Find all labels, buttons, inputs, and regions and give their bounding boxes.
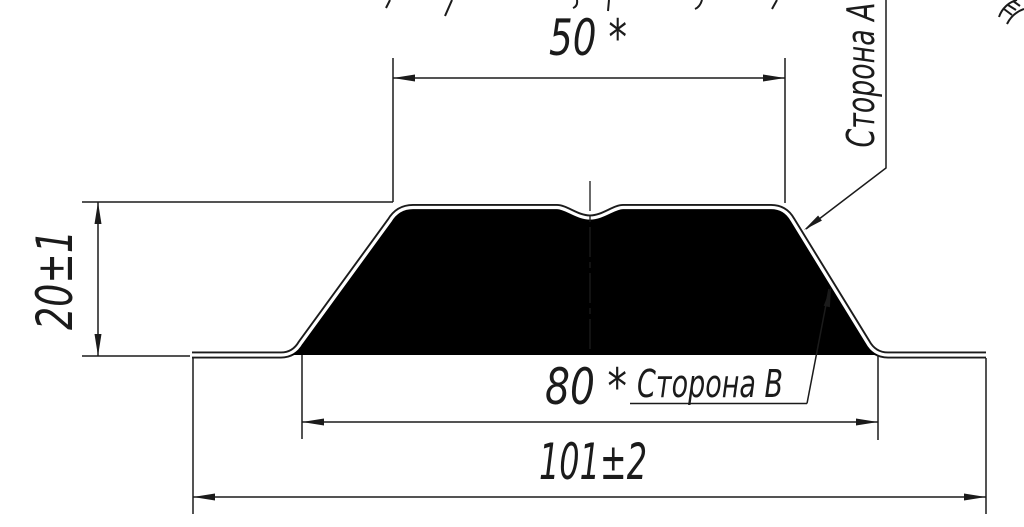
dimension-label-overall-width: 101±2 <box>539 433 647 491</box>
arrowhead <box>804 216 822 231</box>
dimension-base-width: 80 * <box>302 355 878 440</box>
drawing-canvas: 50 * 20±1 80 * 101±2 <box>0 0 1024 527</box>
arrowhead <box>95 334 102 356</box>
drawing-sheet: 50 * 20±1 80 * 101±2 <box>0 0 1024 527</box>
arrowhead <box>302 419 324 426</box>
detail-view-fragment <box>999 0 1024 24</box>
arrowhead <box>964 494 986 501</box>
arrowhead <box>763 75 785 82</box>
arrowhead <box>95 202 102 224</box>
dimension-label-height: 20±1 <box>26 230 84 330</box>
side-b-label: Сторона В <box>637 362 783 406</box>
side-a-label: Сторона А <box>839 3 883 148</box>
dimension-label-base-width: 80 * <box>545 358 627 416</box>
arrowhead <box>856 419 878 426</box>
arrowhead <box>193 494 215 501</box>
arrowhead <box>393 75 415 82</box>
profile-section <box>192 208 986 356</box>
callout-side-a: Сторона А <box>804 0 886 230</box>
dimension-label-top-width: 50 * <box>549 9 627 67</box>
dimension-top-width: 50 * <box>393 9 785 203</box>
profile-core-line <box>192 208 986 356</box>
